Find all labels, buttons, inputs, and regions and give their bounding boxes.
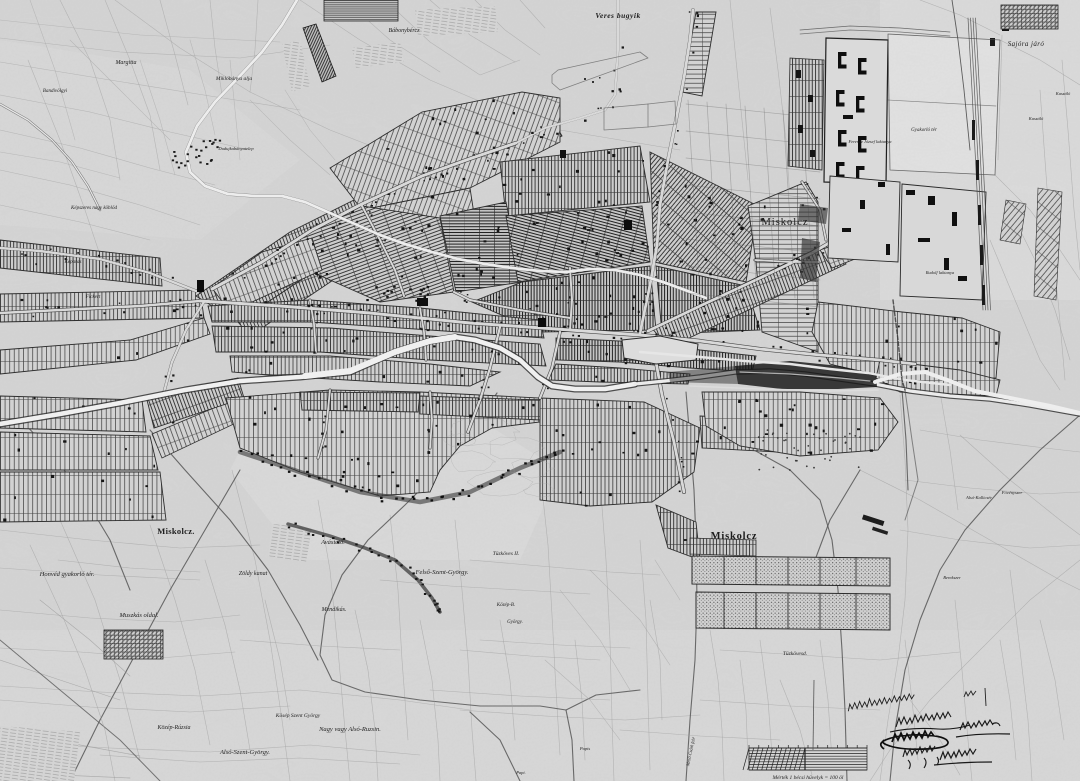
svg-text:Avástető.: Avástető.: [320, 539, 345, 546]
svg-text:Miklóbánya alja: Miklóbánya alja: [215, 76, 252, 82]
svg-text:Berekszer: Berekszer: [943, 575, 961, 580]
svg-text:Kösép Szent György: Kösép Szent György: [275, 713, 321, 719]
svg-text:Honvéd gyakorló tér.: Honvéd gyakorló tér.: [39, 571, 95, 578]
svg-text:Miskolcz: Miskolcz: [711, 531, 758, 542]
svg-text:Kaszáló: Kaszáló: [1055, 91, 1071, 96]
svg-text:Mérték 1 bécsi hüvelyk = 100 ö: Mérték 1 bécsi hüvelyk = 100 öl: [772, 775, 844, 781]
svg-text:Bábonybércz: Bábonybércz: [388, 28, 420, 34]
svg-text:Rudolf laktanya: Rudolf laktanya: [925, 270, 955, 275]
svg-text:Margitta: Margitta: [114, 60, 136, 66]
svg-text:Gyakorló tér: Gyakorló tér: [911, 128, 937, 133]
svg-text:Tüzkövesd.: Tüzkövesd.: [783, 651, 807, 657]
svg-text:Ferencz József laktanya: Ferencz József laktanya: [847, 139, 892, 144]
svg-text:György.: György.: [507, 620, 523, 625]
svg-text:Nagy vagy Alsó-Ruzsin.: Nagy vagy Alsó-Ruzsin.: [318, 726, 381, 733]
svg-text:Bandivölgyi: Bandivölgyi: [43, 89, 68, 94]
svg-text:Miskolcz: Miskolcz: [761, 217, 808, 228]
svg-text:Tüzköves II.: Tüzköves II.: [493, 551, 520, 557]
svg-text:Zöldy kanat: Zöldy kanat: [239, 571, 268, 577]
svg-text:Felső-Szent-György.: Felső-Szent-György.: [414, 569, 468, 576]
svg-text:Miskolcz.: Miskolcz.: [157, 526, 194, 536]
svg-text:Papis: Papis: [579, 746, 590, 751]
svg-text:Papi.: Papi.: [515, 770, 526, 775]
svg-text:Közép-B.: Közép-B.: [496, 603, 515, 608]
svg-text:Fövényszer: Fövényszer: [1001, 490, 1023, 495]
svg-text:Veres bugyik: Veres bugyik: [595, 11, 640, 20]
svg-text:Sajóra járó: Sajóra járó: [1008, 40, 1045, 48]
svg-text:Alsó-Szent-György.: Alsó-Szent-György.: [219, 749, 270, 756]
svg-text:Kaszáló: Kaszáló: [1028, 116, 1044, 121]
svg-text:Közép-Rúzsia: Közép-Rúzsia: [157, 725, 191, 731]
svg-text:Képaras: Képaras: [64, 260, 82, 265]
svg-text:Képszeres nagy köblöd: Képszeres nagy köblöd: [70, 206, 117, 211]
svg-text:Dudujkabányatelep: Dudujkabányatelep: [217, 146, 254, 151]
svg-text:Alsó-Kallicsér: Alsó-Kallicsér: [965, 495, 992, 500]
svg-text:Muszkás oldal.: Muszkás oldal.: [119, 612, 159, 619]
svg-text:Mendikás.: Mendikás.: [321, 607, 347, 613]
svg-text:Fickert: Fickert: [85, 295, 101, 300]
